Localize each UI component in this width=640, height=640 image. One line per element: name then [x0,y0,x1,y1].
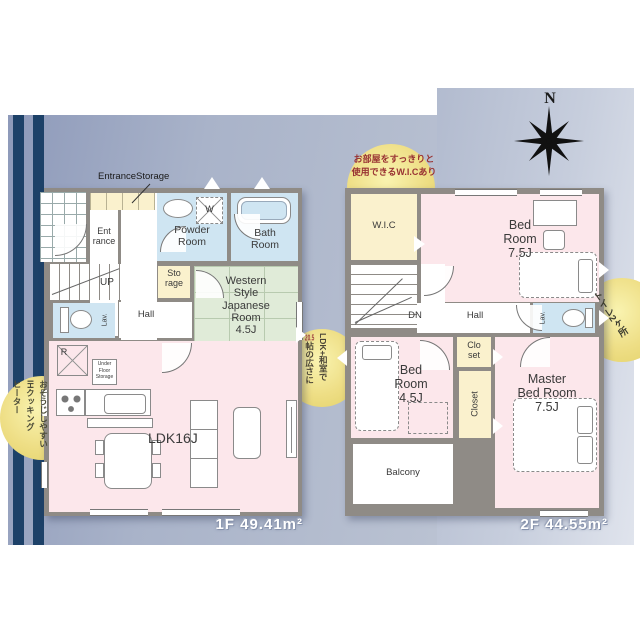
window [162,509,240,516]
badge-ih-cooking-text: おそうじしやすい IHクッキング ヒーター [10,380,50,458]
balcony-label: Balcony [371,468,435,479]
badge-wic-line1: お部屋をすっきりと [349,153,439,166]
toilet1-tank-icon [60,307,69,333]
tv-board-icon [286,400,297,458]
badge-ih-line1: おそうじしやすい [36,380,49,458]
badge-ldk-line1: LDK+和室で [316,333,330,405]
wic-label: W.I.C [351,221,417,232]
badge-ldk-washitsu-text: LDK+和室で 20.5帖の広さに [302,333,329,405]
hall1-label: Hall [128,310,164,321]
floor2-area-label: 2F 44.55m² [480,516,608,533]
chair-icon [152,463,161,478]
badge-ldk-line2: 20.5帖の広さに [302,333,316,405]
decor-stripe-1 [13,115,24,545]
toilet2-tank-icon [585,308,593,328]
entrance-storage-label: EntranceStorage [98,172,193,183]
badge-wic-line2: 使用できるW.I.Cあり [349,166,439,179]
closet-label: Closet [459,371,491,438]
compass-rose-icon [512,104,586,178]
storage-label: Sto rage [158,268,190,288]
floor1-area-label: 1F 49.41m² [175,516,303,533]
master-bedroom-label: Master Bed Room 7.5J [497,372,597,414]
bedroom2-label: Bed Room 4.5J [376,363,446,405]
entrance-storage-pointer-line [126,183,152,205]
fridge-label: R [58,347,70,357]
bedroom1-label: Bed Room 7.5J [470,218,570,260]
powder-room-label: Powder Room [160,225,224,249]
window [41,462,48,488]
lav2-text: Lav. [539,312,547,325]
dining-table [104,433,152,489]
stove-icon [56,389,85,416]
kitchen-counter [85,389,151,416]
lav1-text: Lav. [101,314,109,327]
coffee-table [233,407,261,459]
chair-icon [95,463,104,478]
bath-room-label: Bath Room [240,228,290,252]
underfloor-storage-label: Under Floor Storage [92,361,117,381]
chair-icon [95,440,104,455]
desk-dashed-icon [408,402,448,434]
badge-ih-line3: ヒーター [10,380,23,458]
compass-north-label: N [530,90,570,108]
hall2-label: Hall [455,311,495,322]
ldk-label: LDK16J [148,431,218,447]
washer-label: W [196,204,223,214]
closet-text: Closet [470,392,480,418]
kitchen-island [87,418,153,428]
window [455,189,517,196]
badge-ih-line2: IHクッキング [23,380,36,458]
dn-label: DN [400,311,430,322]
window [540,189,582,196]
badge-ldk-number: 20.5 [305,333,315,342]
toilet2-bowl-icon [562,309,585,327]
closet-upper-label: Clo set [457,340,491,360]
lav1-label: Lav. [98,305,112,335]
toilet1-bowl-icon [70,310,92,329]
sink-icon [163,199,193,218]
lav2-label: Lav. [536,303,550,333]
entrance-label: Ent rance [88,226,120,246]
window [90,509,148,516]
japanese-room-label: Western Style Japanese Room 4.5J [196,275,296,337]
up-label: UP [92,277,122,288]
badge-ldk-rest: 帖の広さに [305,342,315,385]
badge-wic-note-text: お部屋をすっきりと 使用できるW.I.Cあり [349,153,439,179]
floorplan-image: N おそうじしやすい IHクッキング ヒーター LDK+和室で 20.5帖の広さ… [0,0,640,640]
